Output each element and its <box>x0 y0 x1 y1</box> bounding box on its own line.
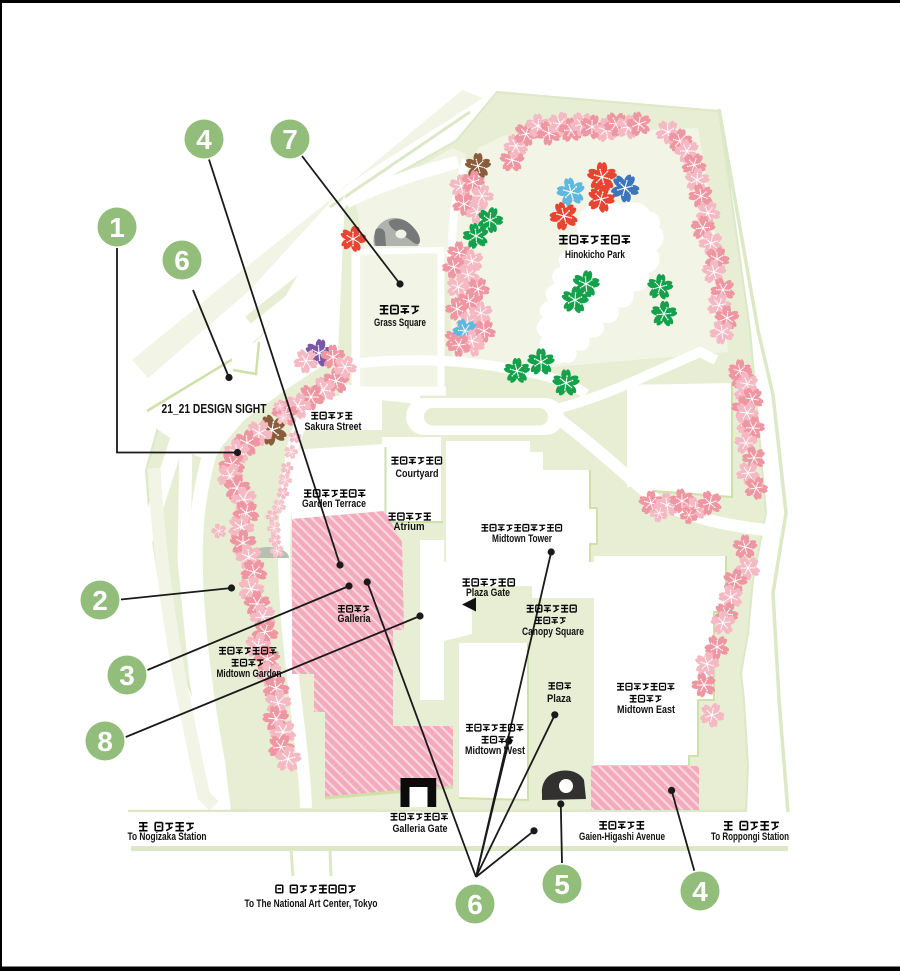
svg-text:To Nogizaka Station: To Nogizaka Station <box>128 831 207 843</box>
svg-text:To Roppongi Station: To Roppongi Station <box>711 831 789 843</box>
svg-text:6: 6 <box>174 245 190 276</box>
svg-text:3: 3 <box>119 660 135 691</box>
svg-text:Midtown Tower: Midtown Tower <box>492 533 553 545</box>
svg-text:Midtown West: Midtown West <box>465 745 525 757</box>
svg-text:Plaza Gate: Plaza Gate <box>466 587 510 599</box>
svg-text:1: 1 <box>109 212 125 243</box>
svg-text:Sakura Street: Sakura Street <box>305 421 362 433</box>
svg-text:7: 7 <box>282 124 298 155</box>
svg-text:Galleria: Galleria <box>338 613 372 625</box>
svg-text:5: 5 <box>554 869 570 900</box>
svg-text:Canopy Square: Canopy Square <box>522 626 584 638</box>
svg-text:Midtown East: Midtown East <box>617 704 675 716</box>
svg-text:4: 4 <box>692 876 708 907</box>
svg-text:Garden Terrace: Garden Terrace <box>302 498 366 510</box>
svg-text:4: 4 <box>196 124 212 155</box>
svg-text:Plaza: Plaza <box>547 693 572 705</box>
svg-text:To The National Art Center, To: To The National Art Center, Tokyo <box>245 898 378 910</box>
svg-text:Atrium: Atrium <box>394 521 425 533</box>
svg-text:Grass Square: Grass Square <box>374 317 426 329</box>
svg-text:Hinokicho Park: Hinokicho Park <box>565 249 626 261</box>
svg-text:Midtown Garden: Midtown Garden <box>217 668 282 680</box>
svg-text:Gaien-Higashi Avenue: Gaien-Higashi Avenue <box>579 831 665 843</box>
svg-text:Courtyard: Courtyard <box>396 468 439 480</box>
svg-text:21_21 DESIGN SIGHT: 21_21 DESIGN SIGHT <box>162 401 267 416</box>
svg-text:Galleria Gate: Galleria Gate <box>393 823 448 835</box>
svg-text:8: 8 <box>97 726 113 757</box>
svg-text:6: 6 <box>467 889 483 920</box>
svg-text:2: 2 <box>92 585 108 616</box>
